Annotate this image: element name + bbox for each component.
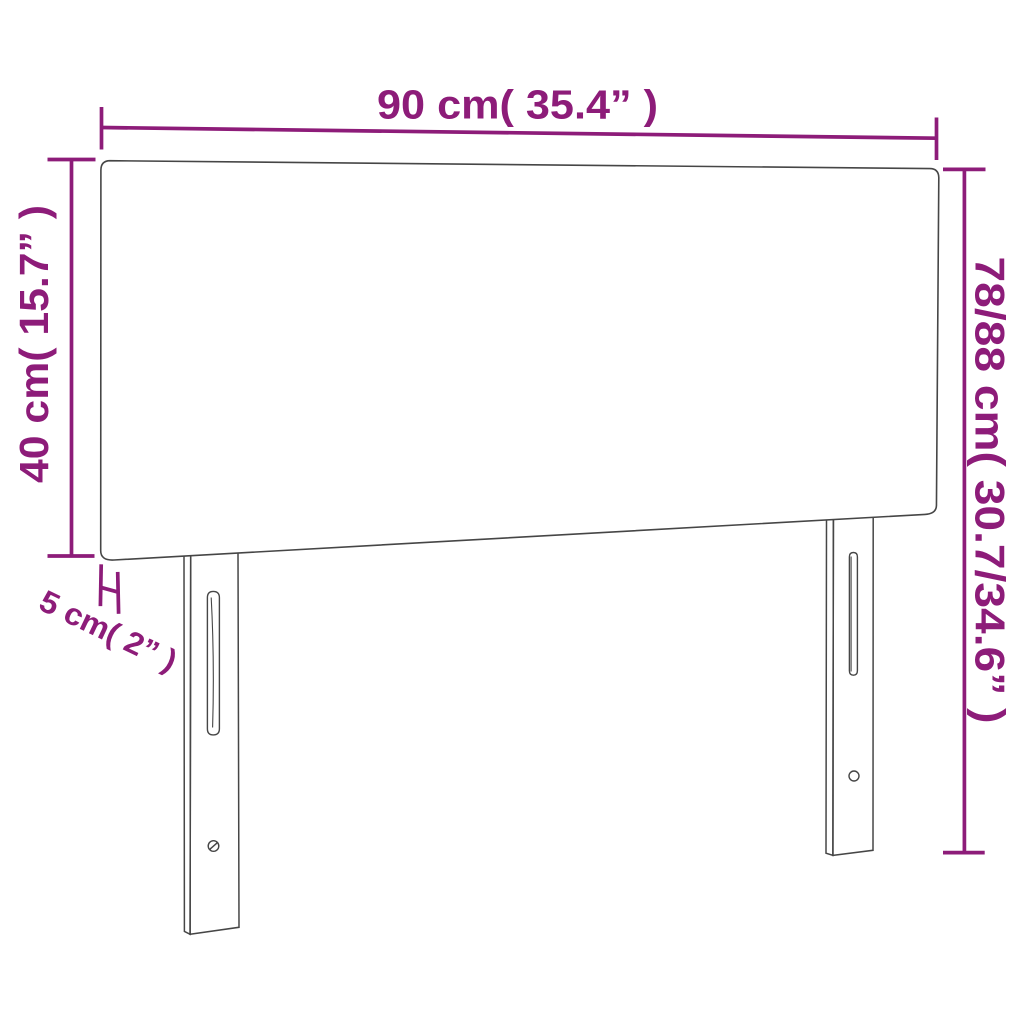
svg-text:40 cm( 15.7” ): 40 cm( 15.7” ): [11, 205, 57, 483]
svg-text:78/88 cm( 30.7/34.6” ): 78/88 cm( 30.7/34.6” ): [967, 257, 1014, 724]
svg-text:90 cm( 35.4” ): 90 cm( 35.4” ): [377, 82, 658, 128]
